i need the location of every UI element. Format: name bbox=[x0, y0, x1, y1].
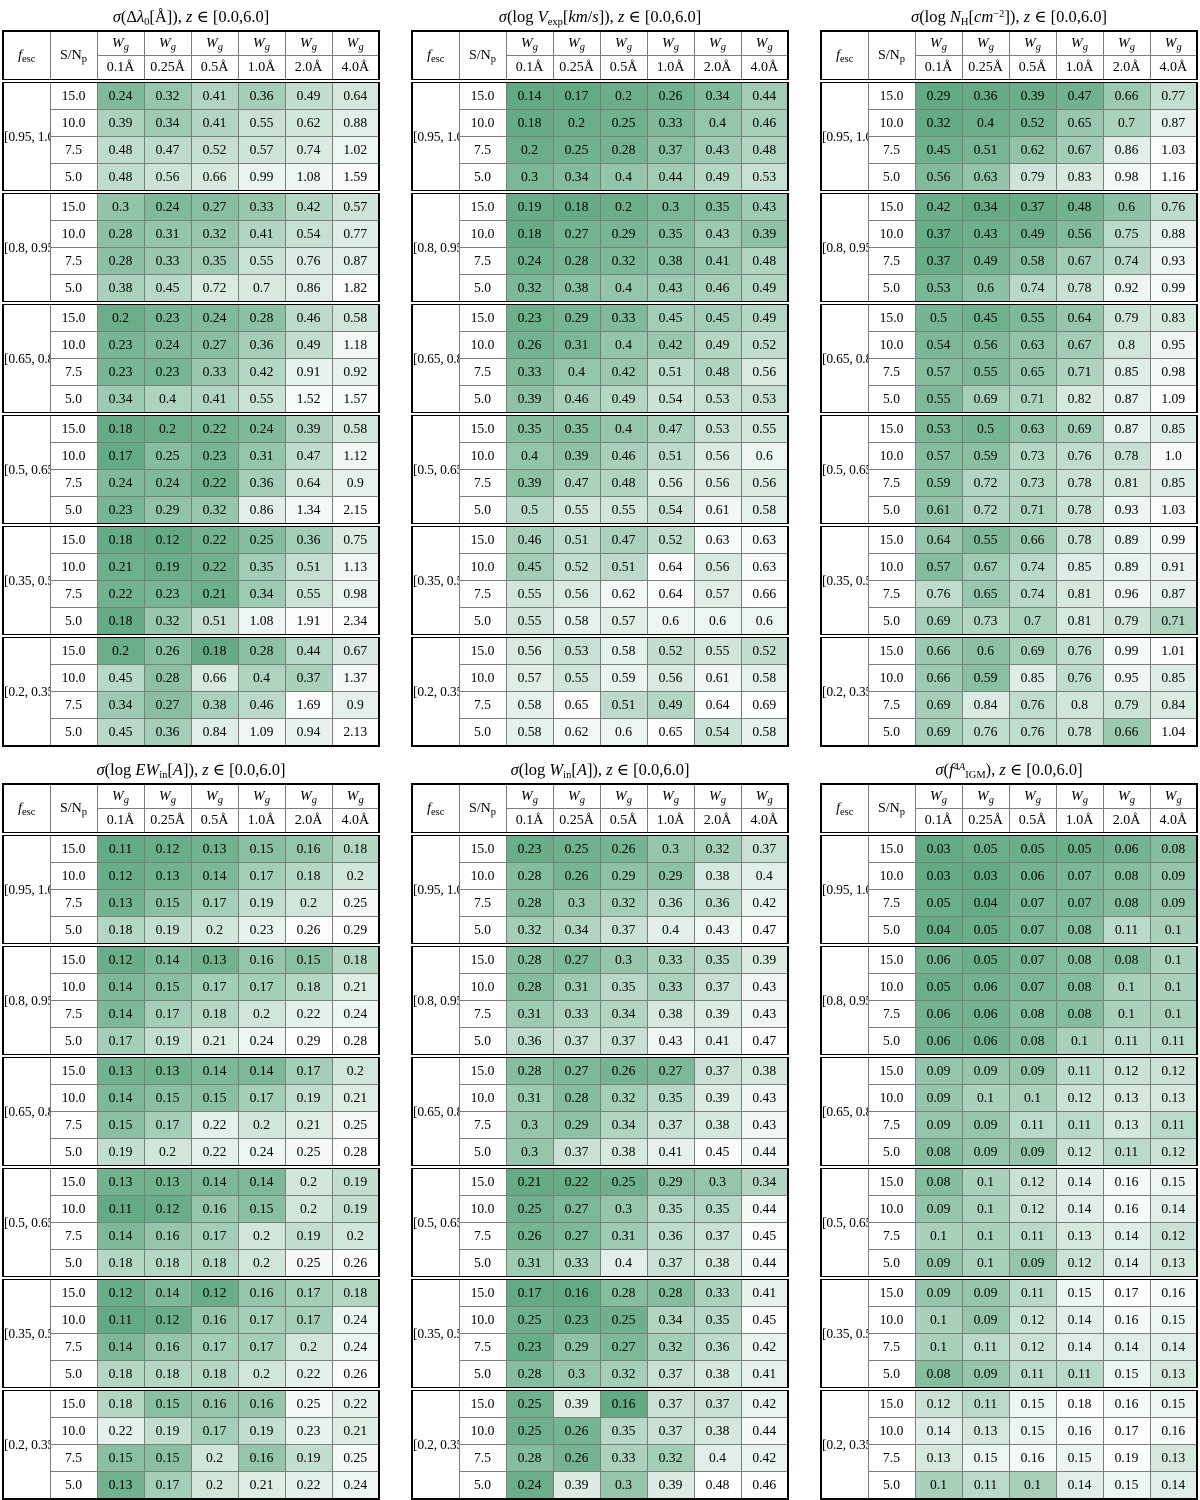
table-row: [0.2, 0.35]15.00.20.260.180.280.440.67 bbox=[3, 636, 379, 665]
sigma-value-cell: 0.62 bbox=[1009, 137, 1056, 164]
sigma-value-cell: 0.25 bbox=[506, 1418, 553, 1445]
sigma-value-cell: 0.93 bbox=[1150, 248, 1197, 275]
sigma-value-cell: 0.28 bbox=[553, 1085, 600, 1112]
sigma-value-cell: 0.13 bbox=[144, 863, 191, 890]
sigma-value-cell: 0.58 bbox=[332, 414, 379, 443]
sigma-value-cell: 0.11 bbox=[1009, 1223, 1056, 1250]
sigma-value-cell: 0.37 bbox=[600, 1028, 647, 1057]
sigma-value-cell: 0.44 bbox=[647, 164, 694, 193]
sigma-value-cell: 0.2 bbox=[144, 414, 191, 443]
fesc-group: [0.5, 0.65]15.00.530.50.630.690.870.8510… bbox=[821, 414, 1197, 525]
fesc-group: [0.5, 0.65]15.00.180.20.220.240.390.5810… bbox=[3, 414, 379, 525]
sigma-value-cell: 0.31 bbox=[506, 1250, 553, 1279]
sigma-value-cell: 0.23 bbox=[238, 917, 285, 946]
sigma-value-cell: 0.79 bbox=[1103, 303, 1150, 332]
snp-value-label: 10.0 bbox=[459, 863, 506, 890]
sigma-value-cell: 0.1 bbox=[915, 1472, 962, 1500]
table-row: 10.00.140.130.150.160.170.16 bbox=[821, 1418, 1197, 1445]
sigma-value-cell: 0.18 bbox=[191, 1361, 238, 1390]
table-row: 7.50.220.230.210.340.550.98 bbox=[3, 581, 379, 608]
table-row: 5.00.50.550.550.540.610.58 bbox=[412, 497, 788, 526]
sigma-value-cell: 0.66 bbox=[1009, 525, 1056, 554]
sigma-value-cell: 0.2 bbox=[553, 110, 600, 137]
sigma-value-cell: 0.26 bbox=[553, 863, 600, 890]
sigma-value-cell: 0.25 bbox=[285, 1139, 332, 1168]
sigma-value-cell: 0.12 bbox=[1009, 1167, 1056, 1196]
snp-value-label: 10.0 bbox=[868, 974, 915, 1001]
snp-value-label: 15.0 bbox=[50, 834, 97, 863]
sigma-value-cell: 0.09 bbox=[915, 1278, 962, 1307]
sigma-value-cell: 0.48 bbox=[1056, 192, 1103, 221]
wg-width-header: 1.0Å bbox=[1056, 56, 1103, 82]
sigma-value-cell: 0.14 bbox=[1103, 1334, 1150, 1361]
wg-width-header: 4.0Å bbox=[1150, 56, 1197, 82]
sigma-value-cell: 0.37 bbox=[600, 917, 647, 946]
sigma-value-cell: 0.28 bbox=[238, 636, 285, 665]
sigma-value-cell: 2.15 bbox=[332, 497, 379, 526]
sigma-value-cell: 0.15 bbox=[1056, 1445, 1103, 1472]
sigma-value-cell: 0.09 bbox=[1009, 1139, 1056, 1168]
sigma-value-cell: 0.65 bbox=[1056, 110, 1103, 137]
sigma-value-cell: 0.29 bbox=[285, 1028, 332, 1057]
sigma-value-cell: 0.17 bbox=[191, 974, 238, 1001]
sigma-value-cell: 0.23 bbox=[144, 359, 191, 386]
wg-header: Wg bbox=[97, 31, 144, 56]
wg-header: Wg bbox=[238, 784, 285, 809]
sigma-value-cell: 0.6 bbox=[694, 608, 741, 637]
table-row: [0.35, 0.5]15.00.180.120.220.250.360.75 bbox=[3, 525, 379, 554]
sigma-value-cell: 0.41 bbox=[694, 1028, 741, 1057]
fesc-group: [0.2, 0.35]15.00.20.260.180.280.440.6710… bbox=[3, 636, 379, 746]
sigma-value-cell: 0.87 bbox=[332, 248, 379, 275]
sigma-value-cell: 0.41 bbox=[238, 221, 285, 248]
sigma-value-cell: 0.37 bbox=[694, 1389, 741, 1418]
sigma-value-cell: 0.78 bbox=[1056, 470, 1103, 497]
sigma-value-cell: 0.84 bbox=[191, 719, 238, 747]
sigma-value-cell: 0.76 bbox=[1150, 192, 1197, 221]
snp-value-label: 15.0 bbox=[868, 414, 915, 443]
wg-width-header: 4.0Å bbox=[332, 56, 379, 82]
sigma-value-cell: 0.11 bbox=[1103, 1139, 1150, 1168]
sigma-value-cell: 0.09 bbox=[1009, 1250, 1056, 1279]
snp-value-label: 7.5 bbox=[459, 1001, 506, 1028]
snp-value-label: 15.0 bbox=[50, 1056, 97, 1085]
sigma-value-cell: 0.48 bbox=[97, 164, 144, 193]
sigma-value-cell: 0.33 bbox=[600, 1445, 647, 1472]
table-row: 5.00.310.330.40.370.380.44 bbox=[412, 1250, 788, 1279]
fesc-group: [0.5, 0.65]15.00.130.130.140.140.20.1910… bbox=[3, 1167, 379, 1278]
fesc-group: [0.65, 0.8]15.00.280.270.260.270.370.381… bbox=[412, 1056, 788, 1167]
sigma-value-cell: 0.33 bbox=[600, 303, 647, 332]
table-row: [0.2, 0.35]15.00.660.60.690.760.991.01 bbox=[821, 636, 1197, 665]
sigma-table: fescS/NpWgWgWgWgWgWg0.1Å0.25Å0.5Å1.0Å2.0… bbox=[411, 783, 789, 1500]
sigma-value-cell: 0.13 bbox=[915, 1445, 962, 1472]
snp-value-label: 10.0 bbox=[50, 554, 97, 581]
sigma-table: fescS/NpWgWgWgWgWgWg0.1Å0.25Å0.5Å1.0Å2.0… bbox=[2, 783, 380, 1500]
sigma-value-cell: 0.36 bbox=[694, 1334, 741, 1361]
sigma-value-cell: 0.16 bbox=[144, 1223, 191, 1250]
fesc-group: [0.65, 0.8]15.00.20.230.240.280.460.5810… bbox=[3, 303, 379, 414]
fesc-group: [0.2, 0.35]15.00.560.530.580.520.550.521… bbox=[412, 636, 788, 746]
sigma-value-cell: 0.29 bbox=[647, 863, 694, 890]
snp-value-label: 5.0 bbox=[459, 1028, 506, 1057]
table-row: 10.00.180.270.290.350.430.39 bbox=[412, 221, 788, 248]
snp-value-label: 5.0 bbox=[50, 1472, 97, 1500]
sigma-value-cell: 0.07 bbox=[1056, 890, 1103, 917]
sigma-value-cell: 0.57 bbox=[694, 581, 741, 608]
table-row: [0.95, 1.0]15.00.140.170.20.260.340.44 bbox=[412, 81, 788, 110]
snp-value-label: 15.0 bbox=[459, 192, 506, 221]
sigma-value-cell: 0.15 bbox=[144, 1389, 191, 1418]
fesc-column-header: fesc bbox=[412, 784, 459, 834]
sigma-value-cell: 0.53 bbox=[694, 386, 741, 415]
sigma-value-cell: 0.52 bbox=[647, 525, 694, 554]
wg-width-header: 2.0Å bbox=[1103, 809, 1150, 835]
sigma-value-cell: 0.12 bbox=[1009, 1196, 1056, 1223]
fesc-range-label: [0.8, 0.95] bbox=[3, 945, 50, 1056]
sigma-value-cell: 0.32 bbox=[506, 917, 553, 946]
snp-value-label: 10.0 bbox=[50, 110, 97, 137]
table-row: 10.00.40.390.460.510.560.6 bbox=[412, 443, 788, 470]
sigma-value-cell: 0.59 bbox=[962, 443, 1009, 470]
sigma-value-cell: 0.08 bbox=[1150, 834, 1197, 863]
snp-value-label: 7.5 bbox=[50, 1445, 97, 1472]
snp-value-label: 5.0 bbox=[50, 386, 97, 415]
sigma-value-cell: 0.41 bbox=[191, 110, 238, 137]
sigma-value-cell: 0.24 bbox=[97, 470, 144, 497]
wg-header: Wg bbox=[600, 784, 647, 809]
fesc-range-label: [0.35, 0.5] bbox=[3, 525, 50, 636]
sigma-value-cell: 0.2 bbox=[238, 1223, 285, 1250]
sigma-value-cell: 0.28 bbox=[506, 945, 553, 974]
sigma-value-cell: 0.24 bbox=[191, 303, 238, 332]
snp-value-label: 15.0 bbox=[868, 1167, 915, 1196]
sigma-value-cell: 0.45 bbox=[97, 719, 144, 747]
snp-value-label: 5.0 bbox=[868, 275, 915, 304]
fesc-group: [0.35, 0.5]15.00.180.120.220.250.360.751… bbox=[3, 525, 379, 636]
sigma-value-cell: 0.13 bbox=[191, 834, 238, 863]
sigma-value-cell: 0.18 bbox=[97, 1250, 144, 1279]
sigma-value-cell: 0.71 bbox=[1009, 497, 1056, 526]
sigma-value-cell: 0.38 bbox=[97, 275, 144, 304]
sigma-value-cell: 0.53 bbox=[553, 636, 600, 665]
sigma-value-cell: 0.73 bbox=[1009, 470, 1056, 497]
table-row: 7.50.450.510.620.670.861.03 bbox=[821, 137, 1197, 164]
sigma-value-cell: 0.47 bbox=[285, 443, 332, 470]
sigma-value-cell: 0.3 bbox=[506, 1139, 553, 1168]
sigma-value-cell: 1.59 bbox=[332, 164, 379, 193]
sigma-value-cell: 0.21 bbox=[191, 581, 238, 608]
sigma-value-cell: 0.47 bbox=[144, 137, 191, 164]
sigma-value-cell: 0.13 bbox=[1150, 1361, 1197, 1390]
sigma-value-cell: 0.35 bbox=[647, 221, 694, 248]
sigma-value-cell: 0.1 bbox=[1150, 1001, 1197, 1028]
sigma-value-cell: 0.16 bbox=[1103, 1307, 1150, 1334]
snp-value-label: 15.0 bbox=[868, 1389, 915, 1418]
fesc-range-label: [0.2, 0.35] bbox=[821, 636, 868, 746]
sigma-value-cell: 1.04 bbox=[1150, 719, 1197, 747]
wg-header: Wg bbox=[506, 31, 553, 56]
sigma-value-cell: 0.71 bbox=[1009, 386, 1056, 415]
sigma-value-cell: 0.87 bbox=[1150, 581, 1197, 608]
wg-width-header: 0.25Å bbox=[553, 809, 600, 835]
table-row: 10.00.310.280.320.350.390.43 bbox=[412, 1085, 788, 1112]
sigma-value-cell: 0.14 bbox=[191, 863, 238, 890]
sigma-value-cell: 0.38 bbox=[741, 1056, 788, 1085]
table-row: 5.00.450.360.841.090.942.13 bbox=[3, 719, 379, 747]
table-row: 5.00.340.40.410.551.521.57 bbox=[3, 386, 379, 415]
sigma-value-cell: 0.36 bbox=[694, 890, 741, 917]
sigma-value-cell: 0.26 bbox=[285, 917, 332, 946]
snp-value-label: 10.0 bbox=[50, 665, 97, 692]
sigma-value-cell: 0.13 bbox=[97, 1472, 144, 1500]
sigma-value-cell: 0.08 bbox=[1009, 1028, 1056, 1057]
sigma-value-cell: 0.49 bbox=[647, 692, 694, 719]
sigma-value-cell: 0.63 bbox=[694, 525, 741, 554]
sigma-value-cell: 0.41 bbox=[191, 386, 238, 415]
sigma-value-cell: 0.13 bbox=[1103, 1112, 1150, 1139]
sigma-value-cell: 0.04 bbox=[962, 890, 1009, 917]
fesc-range-label: [0.65, 0.8] bbox=[821, 1056, 868, 1167]
sigma-value-cell: 0.22 bbox=[332, 1389, 379, 1418]
sigma-value-cell: 0.63 bbox=[1009, 414, 1056, 443]
sigma-value-cell: 0.83 bbox=[1150, 303, 1197, 332]
sigma-value-cell: 0.14 bbox=[191, 1056, 238, 1085]
table-row: [0.95, 1.0]15.00.290.360.390.470.660.77 bbox=[821, 81, 1197, 110]
sigma-value-cell: 0.19 bbox=[144, 917, 191, 946]
sigma-value-cell: 0.17 bbox=[97, 443, 144, 470]
sigma-value-cell: 0.25 bbox=[600, 1307, 647, 1334]
sigma-value-cell: 0.32 bbox=[647, 1445, 694, 1472]
sigma-value-cell: 0.34 bbox=[97, 692, 144, 719]
sigma-value-cell: 0.34 bbox=[553, 917, 600, 946]
sigma-value-cell: 0.57 bbox=[915, 359, 962, 386]
sigma-value-cell: 0.52 bbox=[553, 554, 600, 581]
wg-header: Wg bbox=[915, 784, 962, 809]
sigma-value-cell: 0.52 bbox=[1009, 110, 1056, 137]
sigma-value-cell: 0.39 bbox=[506, 470, 553, 497]
snp-column-header: S/Np bbox=[50, 31, 97, 81]
table-row: 5.00.040.050.070.080.110.1 bbox=[821, 917, 1197, 946]
sigma-value-cell: 0.4 bbox=[600, 164, 647, 193]
sigma-value-cell: 0.59 bbox=[962, 665, 1009, 692]
snp-value-label: 10.0 bbox=[868, 1085, 915, 1112]
sigma-value-cell: 0.09 bbox=[915, 1112, 962, 1139]
sigma-value-cell: 0.37 bbox=[647, 1389, 694, 1418]
sigma-value-cell: 0.37 bbox=[647, 137, 694, 164]
sigma-value-cell: 0.58 bbox=[332, 303, 379, 332]
sigma-value-cell: 0.11 bbox=[962, 1472, 1009, 1500]
table-row: 7.50.280.260.330.320.40.42 bbox=[412, 1445, 788, 1472]
sigma-value-cell: 0.45 bbox=[694, 1139, 741, 1168]
snp-value-label: 15.0 bbox=[459, 1278, 506, 1307]
sigma-value-cell: 1.52 bbox=[285, 386, 332, 415]
wg-header: Wg bbox=[285, 784, 332, 809]
sigma-value-cell: 0.12 bbox=[915, 1389, 962, 1418]
sigma-value-cell: 0.85 bbox=[1150, 665, 1197, 692]
wg-header: Wg bbox=[553, 784, 600, 809]
sigma-value-cell: 0.39 bbox=[97, 110, 144, 137]
sigma-value-cell: 0.28 bbox=[144, 665, 191, 692]
sigma-value-cell: 0.36 bbox=[962, 81, 1009, 110]
snp-value-label: 15.0 bbox=[868, 525, 915, 554]
table-row: 7.50.580.650.510.490.640.69 bbox=[412, 692, 788, 719]
table-row: 5.00.690.730.70.810.790.71 bbox=[821, 608, 1197, 637]
sigma-value-cell: 0.91 bbox=[285, 359, 332, 386]
table-row: 7.50.10.110.120.140.140.14 bbox=[821, 1334, 1197, 1361]
table-row: 5.00.560.630.790.830.981.16 bbox=[821, 164, 1197, 193]
snp-value-label: 7.5 bbox=[50, 1223, 97, 1250]
snp-value-label: 5.0 bbox=[50, 917, 97, 946]
sigma-value-cell: 0.37 bbox=[647, 1112, 694, 1139]
sigma-value-cell: 0.12 bbox=[1056, 1085, 1103, 1112]
wg-header: Wg bbox=[741, 784, 788, 809]
sigma-value-cell: 0.4 bbox=[962, 110, 1009, 137]
snp-value-label: 5.0 bbox=[868, 608, 915, 637]
sigma-value-cell: 0.93 bbox=[1103, 497, 1150, 526]
sigma-value-cell: 0.09 bbox=[962, 1278, 1009, 1307]
table-row: 7.50.280.30.320.360.360.42 bbox=[412, 890, 788, 917]
sigma-value-cell: 0.55 bbox=[962, 359, 1009, 386]
sigma-value-cell: 0.28 bbox=[506, 1056, 553, 1085]
sigma-value-cell: 0.06 bbox=[915, 1001, 962, 1028]
sigma-value-cell: 0.35 bbox=[506, 414, 553, 443]
sigma-value-cell: 0.12 bbox=[1056, 1139, 1103, 1168]
table-header: fescS/NpWgWgWgWgWgWg0.1Å0.25Å0.5Å1.0Å2.0… bbox=[821, 31, 1197, 81]
sigma-value-cell: 0.16 bbox=[553, 1278, 600, 1307]
sigma-value-cell: 0.17 bbox=[285, 1278, 332, 1307]
table-block-sigma-lognh: σ(log NH[cm−2]), z ∈ [0.0,6.0] fescS/NpW… bbox=[820, 4, 1198, 747]
sigma-value-cell: 0.8 bbox=[1056, 692, 1103, 719]
sigma-value-cell: 0.19 bbox=[285, 1445, 332, 1472]
table-row: 7.50.480.470.520.570.741.02 bbox=[3, 137, 379, 164]
sigma-value-cell: 0.24 bbox=[238, 414, 285, 443]
sigma-value-cell: 0.16 bbox=[238, 945, 285, 974]
sigma-value-cell: 0.06 bbox=[962, 974, 1009, 1001]
fesc-group: [0.65, 0.8]15.00.130.130.140.140.170.210… bbox=[3, 1056, 379, 1167]
sigma-value-cell: 0.44 bbox=[741, 1250, 788, 1279]
snp-value-label: 15.0 bbox=[868, 636, 915, 665]
sigma-value-cell: 0.33 bbox=[191, 359, 238, 386]
sigma-value-cell: 0.58 bbox=[553, 608, 600, 637]
sigma-value-cell: 0.31 bbox=[600, 1223, 647, 1250]
sigma-value-cell: 0.46 bbox=[238, 692, 285, 719]
snp-value-label: 7.5 bbox=[50, 890, 97, 917]
sigma-value-cell: 0.27 bbox=[647, 1056, 694, 1085]
sigma-value-cell: 0.49 bbox=[694, 164, 741, 193]
sigma-value-cell: 0.9 bbox=[332, 692, 379, 719]
sigma-value-cell: 0.08 bbox=[915, 1361, 962, 1390]
sigma-value-cell: 0.17 bbox=[1103, 1418, 1150, 1445]
sigma-value-cell: 0.44 bbox=[741, 1196, 788, 1223]
sigma-value-cell: 0.1 bbox=[1150, 945, 1197, 974]
snp-value-label: 15.0 bbox=[50, 1278, 97, 1307]
sigma-value-cell: 0.15 bbox=[1103, 1472, 1150, 1500]
sigma-value-cell: 0.44 bbox=[741, 81, 788, 110]
sigma-value-cell: 0.12 bbox=[97, 863, 144, 890]
sigma-value-cell: 0.28 bbox=[600, 137, 647, 164]
snp-value-label: 7.5 bbox=[868, 470, 915, 497]
table-row: 10.00.090.10.120.140.160.14 bbox=[821, 1196, 1197, 1223]
table-row: 10.00.260.310.40.420.490.52 bbox=[412, 332, 788, 359]
sigma-value-cell: 0.49 bbox=[694, 332, 741, 359]
sigma-value-cell: 0.3 bbox=[506, 164, 553, 193]
sigma-value-cell: 0.11 bbox=[97, 1196, 144, 1223]
sigma-value-cell: 0.51 bbox=[962, 137, 1009, 164]
snp-value-label: 15.0 bbox=[868, 192, 915, 221]
wg-width-header: 1.0Å bbox=[238, 56, 285, 82]
sigma-value-cell: 0.28 bbox=[506, 890, 553, 917]
wg-width-header: 0.25Å bbox=[962, 809, 1009, 835]
sigma-value-cell: 0.55 bbox=[962, 525, 1009, 554]
snp-value-label: 10.0 bbox=[50, 863, 97, 890]
sigma-value-cell: 0.87 bbox=[1103, 386, 1150, 415]
sigma-value-cell: 0.24 bbox=[332, 1307, 379, 1334]
sigma-value-cell: 0.57 bbox=[915, 443, 962, 470]
table-row: 7.50.240.280.320.380.410.48 bbox=[412, 248, 788, 275]
sigma-value-cell: 0.08 bbox=[1056, 974, 1103, 1001]
sigma-value-cell: 0.1 bbox=[1056, 1028, 1103, 1057]
snp-value-label: 10.0 bbox=[459, 443, 506, 470]
sigma-value-cell: 0.66 bbox=[191, 164, 238, 193]
sigma-value-cell: 0.21 bbox=[332, 1085, 379, 1112]
sigma-value-cell: 0.85 bbox=[1150, 414, 1197, 443]
sigma-value-cell: 0.64 bbox=[647, 554, 694, 581]
sigma-value-cell: 0.64 bbox=[694, 692, 741, 719]
sigma-value-cell: 0.24 bbox=[97, 81, 144, 110]
sigma-value-cell: 0.72 bbox=[962, 497, 1009, 526]
sigma-value-cell: 0.89 bbox=[1103, 554, 1150, 581]
wg-header: Wg bbox=[1009, 784, 1056, 809]
sigma-value-cell: 0.23 bbox=[506, 303, 553, 332]
table-row: 7.50.20.250.280.370.430.48 bbox=[412, 137, 788, 164]
sigma-value-cell: 0.56 bbox=[915, 164, 962, 193]
sigma-value-cell: 0.55 bbox=[238, 248, 285, 275]
sigma-value-cell: 0.35 bbox=[238, 554, 285, 581]
sigma-table: fescS/NpWgWgWgWgWgWg0.1Å0.25Å0.5Å1.0Å2.0… bbox=[2, 30, 380, 747]
sigma-value-cell: 0.18 bbox=[332, 834, 379, 863]
sigma-value-cell: 0.26 bbox=[647, 81, 694, 110]
sigma-value-cell: 0.47 bbox=[600, 525, 647, 554]
sigma-value-cell: 0.46 bbox=[600, 443, 647, 470]
wg-width-header: 1.0Å bbox=[647, 56, 694, 82]
sigma-value-cell: 0.17 bbox=[238, 863, 285, 890]
table-title: σ(log Win[A]), z ∈ [0.0,6.0] bbox=[411, 757, 789, 783]
sigma-value-cell: 0.51 bbox=[285, 554, 332, 581]
sigma-value-cell: 1.34 bbox=[285, 497, 332, 526]
wg-header: Wg bbox=[191, 31, 238, 56]
sigma-value-cell: 0.12 bbox=[1056, 1250, 1103, 1279]
sigma-value-cell: 0.13 bbox=[962, 1418, 1009, 1445]
sigma-value-cell: 0.16 bbox=[1103, 1167, 1150, 1196]
table-row: 5.00.380.450.720.70.861.82 bbox=[3, 275, 379, 304]
sigma-value-cell: 0.4 bbox=[694, 110, 741, 137]
fesc-group: [0.8, 0.95]15.00.280.270.30.330.350.3910… bbox=[412, 945, 788, 1056]
snp-value-label: 15.0 bbox=[50, 945, 97, 974]
sigma-value-cell: 0.37 bbox=[647, 1250, 694, 1279]
sigma-value-cell: 0.36 bbox=[285, 525, 332, 554]
sigma-value-cell: 0.19 bbox=[332, 1196, 379, 1223]
wg-width-header: 0.5Å bbox=[1009, 809, 1056, 835]
sigma-value-cell: 0.69 bbox=[915, 608, 962, 637]
sigma-value-cell: 0.41 bbox=[741, 1361, 788, 1390]
snp-value-label: 7.5 bbox=[50, 1334, 97, 1361]
sigma-value-cell: 0.08 bbox=[915, 1167, 962, 1196]
sigma-value-cell: 0.28 bbox=[506, 863, 553, 890]
sigma-value-cell: 0.69 bbox=[741, 692, 788, 719]
sigma-value-cell: 0.98 bbox=[1103, 164, 1150, 193]
table-row: 5.00.690.760.760.780.661.04 bbox=[821, 719, 1197, 747]
